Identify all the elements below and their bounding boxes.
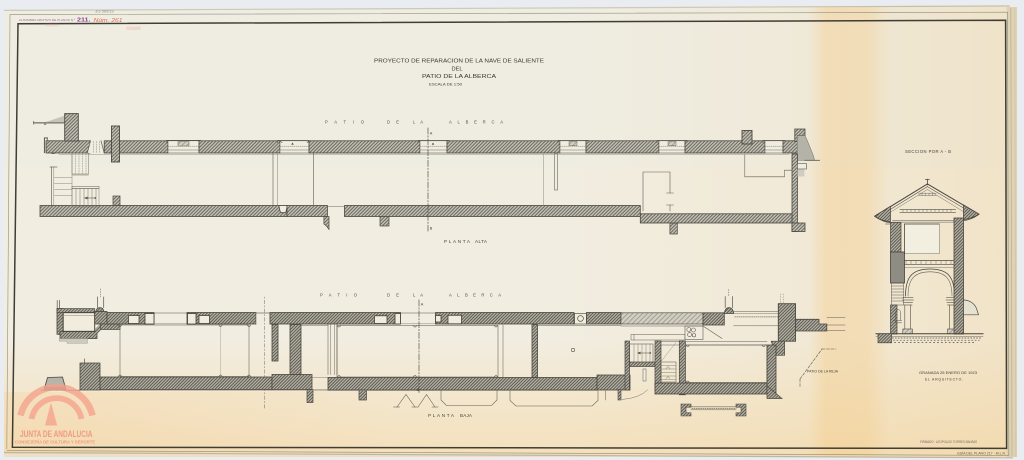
svg-text:SECCION POR A - B: SECCION POR A - B: [905, 149, 951, 154]
svg-text:FIRMADO : LEOPOLDO TORRES BALB: FIRMADO : LEOPOLDO TORRES BALBAS: [920, 440, 978, 444]
svg-text:A: A: [430, 132, 433, 136]
svg-text:ESCALA DE 1:50: ESCALA DE 1:50: [429, 81, 463, 86]
svg-text:PLANTA: PLANTA: [444, 239, 471, 244]
svg-text:211.: 211.: [77, 18, 91, 24]
svg-text:EL ARQUITECTO.: EL ARQUITECTO.: [925, 378, 963, 382]
svg-text:PATIO DE LA ALBERCA: PATIO DE LA ALBERCA: [422, 74, 497, 80]
svg-text:JUNTA DE ANDALUCIA: JUNTA DE ANDALUCIA: [20, 429, 93, 439]
svg-text:BAJA: BAJA: [460, 413, 473, 418]
svg-text:DEL: DEL: [452, 66, 463, 72]
svg-text:PLANTA: PLANTA: [428, 413, 455, 418]
svg-text:GUÍA DEL PLANO 217 - M.L.R.: GUÍA DEL PLANO 217 - M.L.R.: [957, 452, 1006, 456]
svg-text:B: B: [430, 227, 433, 231]
svg-text:ALHAMBRA ARCHIVO DE PLANOS N.º: ALHAMBRA ARCHIVO DE PLANOS N.º: [19, 18, 76, 22]
svg-text:GRANADA 25 ENERO DE 1923: GRANADA 25 ENERO DE 1923: [919, 371, 977, 375]
svg-text:ALTA: ALTA: [475, 239, 488, 244]
svg-text:A: A: [421, 303, 424, 307]
svg-text:PATIO DE LA REJA: PATIO DE LA REJA: [807, 370, 839, 374]
svg-text:ES 585/19: ES 585/19: [96, 10, 114, 14]
svg-text:Núm. 261: Núm. 261: [94, 18, 123, 24]
svg-text:CONSEJERÍA DE CULTURA Y DEPORT: CONSEJERÍA DE CULTURA Y DEPORTE: [15, 438, 95, 445]
svg-text:PROYECTO DE REPARACION DE LA: PROYECTO DE REPARACION DE LA NAVE DE SAL…: [374, 59, 545, 65]
